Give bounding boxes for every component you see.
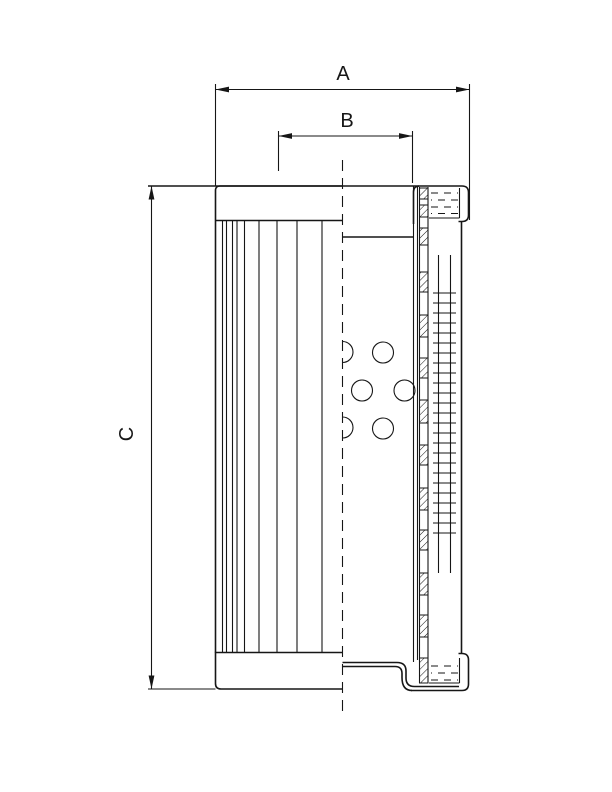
- dim-a-label: A: [336, 63, 350, 85]
- filter-element-drawing: A B C: [0, 0, 612, 792]
- dimension-b: B: [279, 110, 413, 183]
- pleated-media: [216, 221, 323, 653]
- hole-half-bottom: [343, 417, 354, 438]
- bottom-cap-outline: [216, 653, 343, 690]
- dim-b-arrow-right: [399, 133, 413, 139]
- top-seal: [429, 188, 460, 218]
- bottom-cap-step-outer: [343, 667, 413, 691]
- dim-c-label: C: [116, 427, 138, 441]
- core-tube-holes: [343, 342, 416, 440]
- dim-b-arrow-left: [279, 133, 293, 139]
- hole: [373, 342, 394, 363]
- dim-b-label: B: [340, 110, 353, 132]
- dim-a-arrow-right: [456, 87, 470, 93]
- bottom-seal-dashes: [431, 666, 458, 680]
- dim-a-arrow-left: [216, 87, 230, 93]
- strip-hatch-blocks: [420, 188, 429, 683]
- hole-half-top: [343, 342, 354, 363]
- mesh-rungs: [433, 293, 456, 533]
- dimension-c: C: [116, 186, 216, 689]
- hole: [394, 380, 415, 401]
- support-mesh: [433, 255, 456, 573]
- drawing-page: A B C: [0, 0, 612, 792]
- top-end-cap: [148, 186, 419, 237]
- dim-c-arrow-bottom: [149, 676, 155, 690]
- dim-c-arrow-top: [149, 186, 155, 200]
- top-seal-dashes: [431, 193, 458, 214]
- hole: [352, 380, 373, 401]
- hole: [373, 418, 394, 439]
- bottom-seal: [429, 658, 460, 683]
- media-section-strip: [420, 187, 429, 683]
- pleat-lines: [223, 221, 323, 653]
- top-cap-outline: [216, 186, 343, 221]
